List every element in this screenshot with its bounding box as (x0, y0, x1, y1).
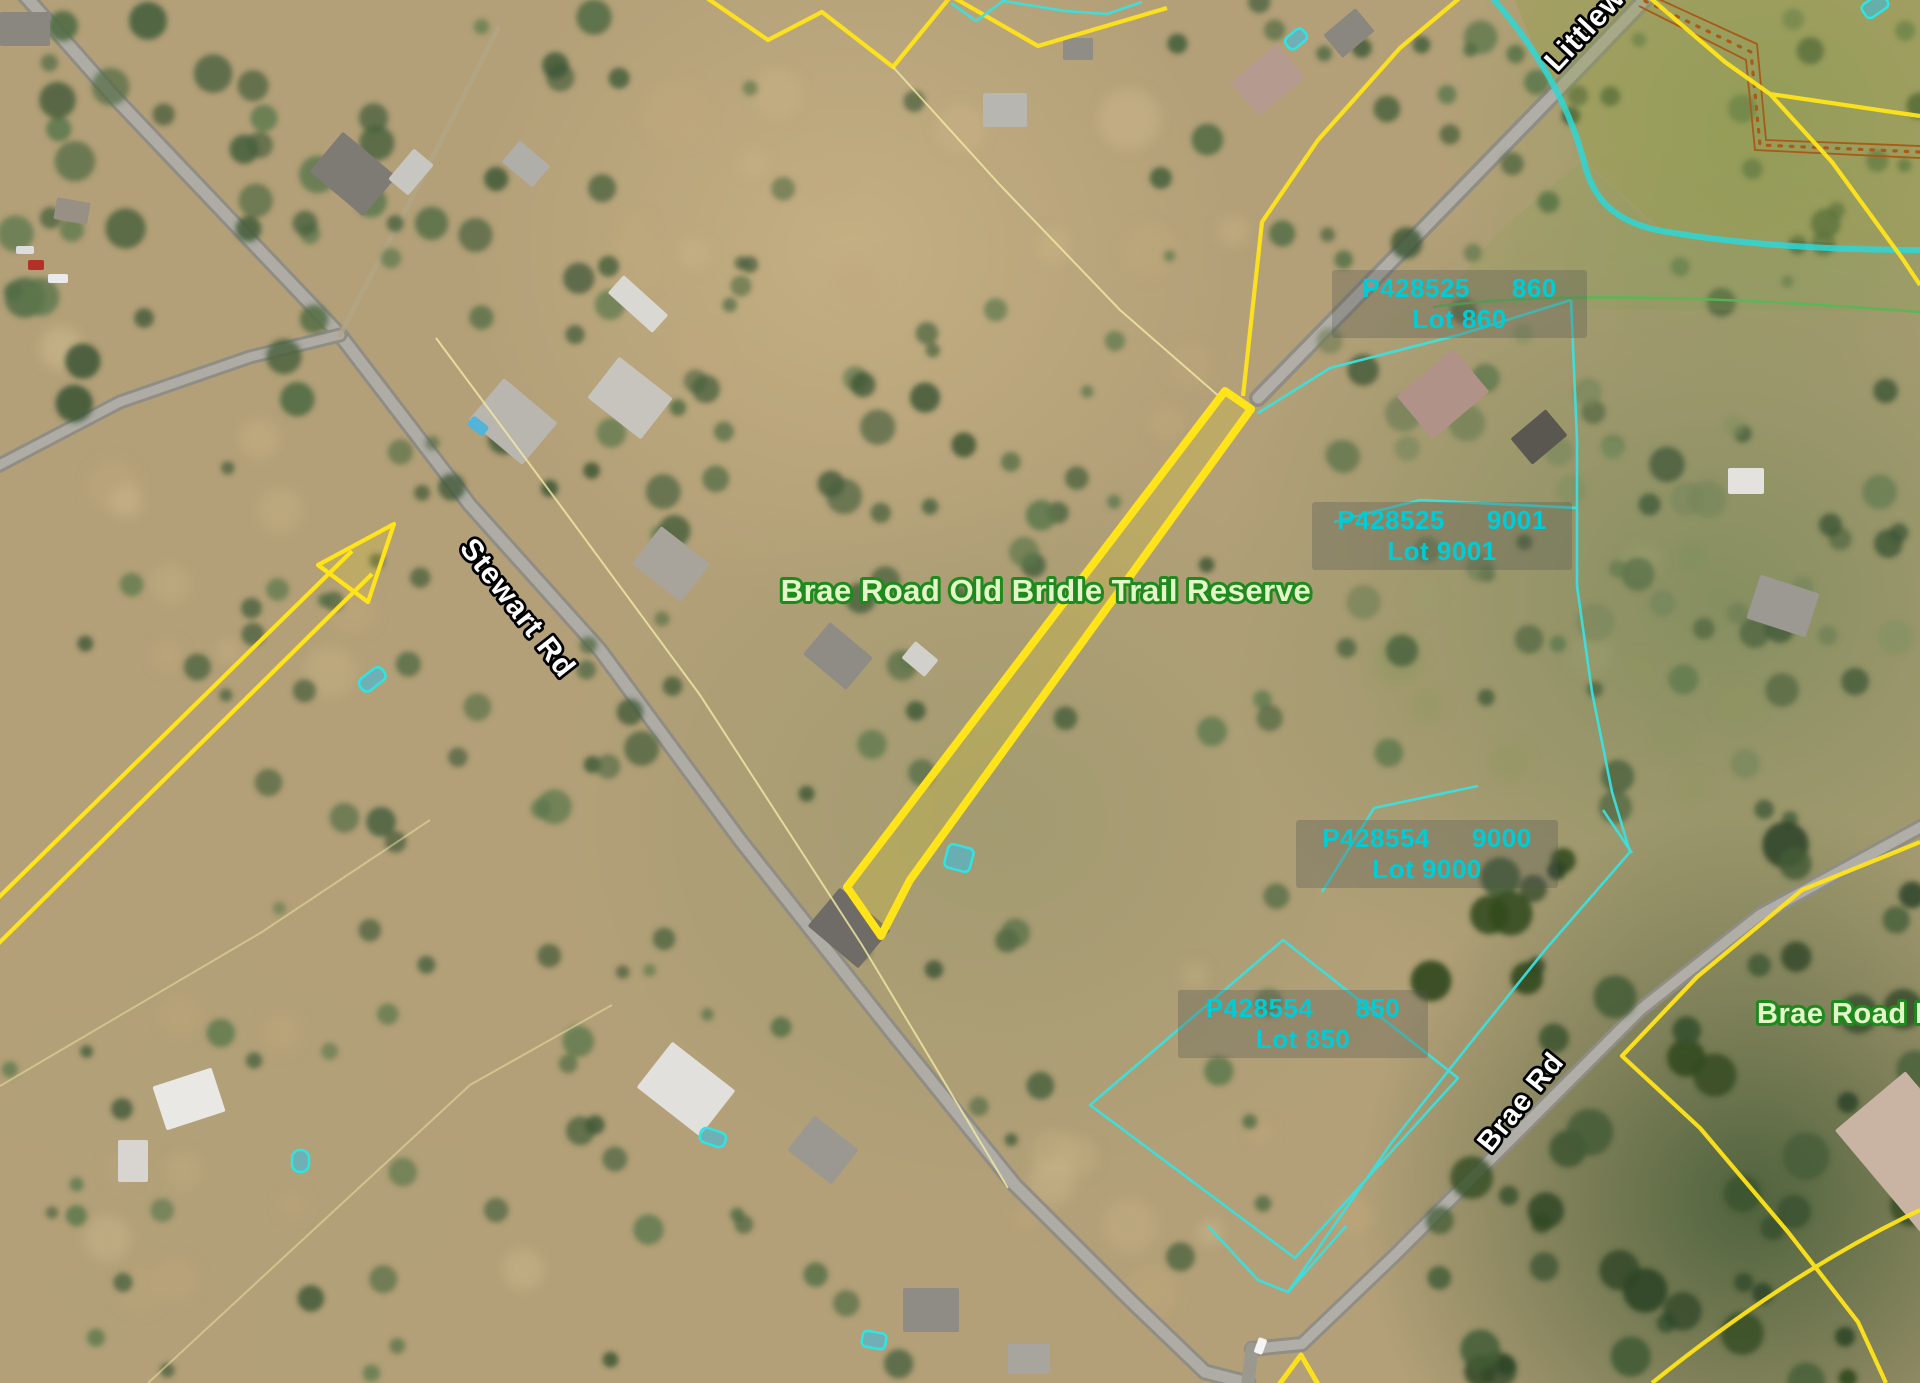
lot-number: 9000 (1472, 823, 1532, 854)
reserve-label-old-bridle-trail: Brae Road Old Bridle Trail Reserve (781, 573, 1311, 608)
map-viewport[interactable]: Stewart Rd Brae Rd Littlew Brae Road Old… (0, 0, 1920, 1383)
lot-name: Lot 850 (1188, 1024, 1418, 1055)
road-label-brae: Brae Rd (1471, 1046, 1570, 1158)
plan-number: P428525 (1362, 273, 1470, 304)
road-label-stewart: Stewart Rd (453, 532, 582, 684)
lot-name: Lot 9001 (1322, 536, 1562, 567)
cadastre-overlay: Stewart Rd Brae Rd Littlew Brae Road Old… (0, 0, 1920, 1383)
selected-strip-old-bridle-trail (847, 391, 1251, 936)
lot-number: 9001 (1487, 505, 1547, 536)
plan-number: P428554 (1322, 823, 1430, 854)
selected-parcel-highlight[interactable] (0, 391, 1251, 948)
plan-number: P428554 (1206, 993, 1314, 1024)
lot-number: 860 (1512, 273, 1557, 304)
reserve-tint-polygons (1436, 0, 1920, 312)
lot-label-9000: P428554 9000 Lot 9000 (1296, 820, 1558, 888)
lot-name: Lot 860 (1342, 304, 1577, 335)
pale-parcel-lines (0, 67, 1222, 1383)
lot-label-9001: P428525 9001 Lot 9001 (1312, 502, 1572, 570)
lot-name: Lot 9000 (1306, 854, 1548, 885)
lot-label-850: P428554 850 Lot 850 (1178, 990, 1428, 1058)
lot-label-860: P428525 860 Lot 860 (1332, 270, 1587, 338)
lot-number: 850 (1355, 993, 1400, 1024)
plan-number: P428525 (1337, 505, 1445, 536)
reserve-label-brae-road-reserve: Brae Road R (1757, 998, 1920, 1030)
